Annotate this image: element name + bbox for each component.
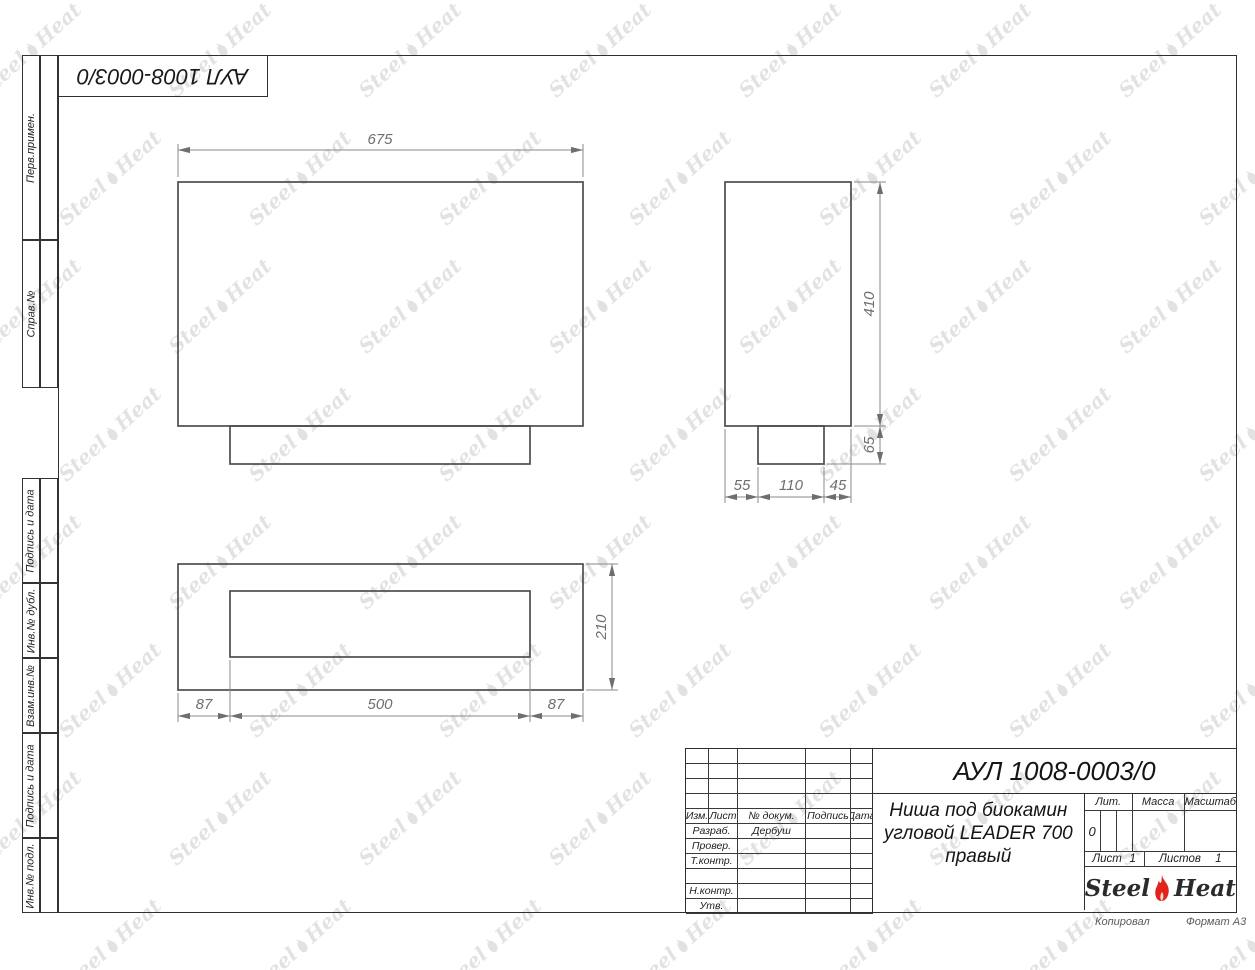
part-name-line2: угловой LEADER 700: [873, 822, 1084, 845]
titleblock-cell: [709, 779, 738, 794]
sheets-label: Листов: [1159, 853, 1201, 865]
titleblock-cell: [806, 779, 851, 794]
titleblock-header-podpis: Подпись: [806, 809, 851, 824]
strip-cell-vzam-inv: Взам.инв.№: [22, 658, 40, 733]
titleblock-cell: [806, 869, 851, 884]
designation-rotated-text: АУЛ 1008-0003/0: [77, 63, 248, 89]
logo-word-heat: Heat: [1174, 875, 1236, 902]
strip-cell-podpis-data-2: Подпись и дата: [22, 733, 40, 838]
titleblock-cell: [686, 794, 709, 809]
title-block-left: Изм. Лист № докум. Подпись Дата Разраб. …: [685, 748, 872, 913]
lit-label: Лит.: [1085, 794, 1133, 810]
strip-cell-blank: [40, 55, 58, 240]
titleblock-role-label: Н.контр.: [686, 884, 738, 899]
titleblock-cell: [738, 779, 806, 794]
titleblock-cell: [851, 824, 873, 839]
mass-value: [1133, 811, 1185, 851]
flame-icon: [1152, 875, 1172, 902]
designation-box-rotated: АУЛ 1008-0003/0: [58, 55, 268, 97]
titleblock-cell: [851, 749, 873, 764]
strip-cell-blank: [40, 478, 58, 583]
lit-subcells: 0: [1085, 811, 1133, 851]
titleblock-part-name: Ниша под биокамин угловой LEADER 700 пра…: [873, 794, 1085, 910]
logo-word-steel: Steel: [1085, 875, 1150, 902]
titleblock-cell: [709, 749, 738, 764]
titleblock-header-docnum: № докум.: [738, 809, 806, 824]
titleblock-cell: [851, 869, 873, 884]
scale-value: [1185, 811, 1236, 851]
lit-value: 0: [1085, 811, 1101, 851]
titleblock-cell: [806, 824, 851, 839]
titleblock-cell: [1117, 811, 1132, 851]
titleblock-header-izm: Изм.: [686, 809, 709, 824]
titleblock-role-label: Утв.: [686, 899, 738, 914]
titleblock-role-label: Провер.: [686, 839, 738, 854]
titleblock-cell: [806, 854, 851, 869]
titleblock-role-value: [738, 854, 806, 869]
sheet-cell: Лист 1: [1085, 852, 1145, 866]
titleblock-role-value: [738, 884, 806, 899]
titleblock-header-list: Лист: [709, 809, 738, 824]
strip-label: Справ.№: [25, 291, 37, 338]
strip-cell-inv-dubl: Инв.№ дубл.: [22, 583, 40, 658]
titleblock-role-value: [738, 899, 806, 914]
strip-label: Перв.примен.: [25, 112, 37, 182]
strip-cell-podpis-data-1: Подпись и дата: [22, 478, 40, 583]
titleblock-cell: [806, 884, 851, 899]
titleblock-cell: [806, 839, 851, 854]
titleblock-role-value: [738, 839, 806, 854]
part-name-line3: правый: [873, 845, 1084, 868]
titleblock-designation: АУЛ 1008-0003/0: [873, 749, 1236, 794]
titleblock-cell: [851, 839, 873, 854]
strip-cell-blank: [40, 583, 58, 658]
format-note: Формат А3: [1186, 916, 1246, 928]
titleblock-role-value: [738, 869, 806, 884]
strip-cell-blank: [40, 838, 58, 913]
titleblock-role-value: Дербуш: [738, 824, 806, 839]
drawing-sheet: SteelHeatSteelHeatSteelHeatSteelHeatStee…: [0, 0, 1255, 970]
titleblock-cell: [686, 764, 709, 779]
strip-cell-blank: [40, 658, 58, 733]
scale-label: Масштаб: [1185, 794, 1236, 810]
company-logo: Steel Heat: [1085, 867, 1236, 910]
titleblock-cell: [686, 779, 709, 794]
titleblock-header-data: Дата: [851, 809, 873, 824]
titleblock-cell: [806, 749, 851, 764]
titleblock-cell: [806, 764, 851, 779]
copied-note: Копировал: [1095, 916, 1150, 928]
sheet-label: Лист: [1092, 853, 1122, 865]
strip-cell-inv-podl: Инв.№ подл.: [22, 838, 40, 913]
titleblock-cell: [851, 899, 873, 914]
titleblock-cell: [709, 764, 738, 779]
titleblock-cell: [851, 764, 873, 779]
strip-cell-blank: [40, 733, 58, 838]
titleblock-cell: [806, 794, 851, 809]
strip-label: Подпись и дата: [25, 489, 37, 572]
titleblock-cell: [709, 794, 738, 809]
strip-label: Инв.№ подл.: [25, 843, 37, 908]
title-block-right: АУЛ 1008-0003/0 Ниша под биокамин углово…: [872, 748, 1237, 913]
titleblock-cell: [1101, 811, 1117, 851]
titleblock-cell: [806, 899, 851, 914]
strip-cell-sprav-no: Справ.№: [22, 240, 40, 388]
strip-label: Инв.№ дубл.: [25, 588, 37, 653]
titleblock-cell: [851, 794, 873, 809]
sheets-value: 1: [1215, 853, 1221, 865]
titleblock-role-label: [686, 869, 738, 884]
mass-label: Масса: [1133, 794, 1185, 810]
sheets-cell: Листов 1: [1145, 852, 1236, 866]
titleblock-cell: [738, 764, 806, 779]
strip-label: Взам.инв.№: [25, 665, 37, 727]
titleblock-cell: [851, 779, 873, 794]
titleblock-cell: [851, 884, 873, 899]
strip-label: Подпись и дата: [25, 744, 37, 827]
sheet-value: 1: [1130, 853, 1136, 865]
titleblock-role-label: Т.контр.: [686, 854, 738, 869]
strip-cell-perv-primen: Перв.примен.: [22, 55, 40, 240]
titleblock-cell: [686, 749, 709, 764]
titleblock-cell: [738, 794, 806, 809]
titleblock-cell: [738, 749, 806, 764]
part-name-line1: Ниша под биокамин: [873, 799, 1084, 822]
strip-cell-blank: [40, 240, 58, 388]
titleblock-role-label: Разраб.: [686, 824, 738, 839]
titleblock-cell: [851, 854, 873, 869]
